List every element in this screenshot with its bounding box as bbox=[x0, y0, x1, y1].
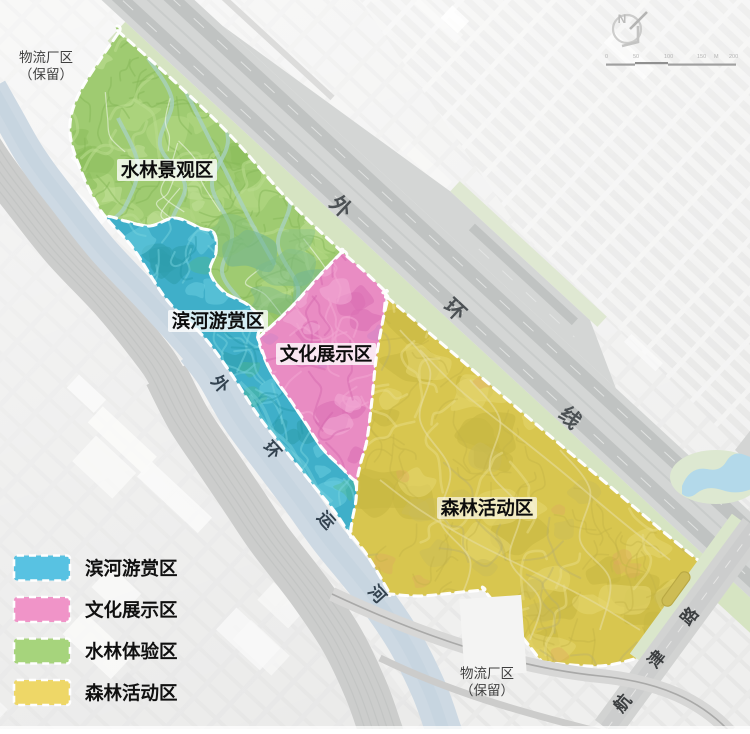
svg-text:滨河游赏区: 滨河游赏区 bbox=[172, 311, 265, 332]
svg-text:150: 150 bbox=[697, 54, 706, 60]
svg-text:0: 0 bbox=[605, 54, 608, 60]
svg-text:50: 50 bbox=[633, 54, 639, 60]
svg-text:水林景观区: 水林景观区 bbox=[121, 160, 214, 181]
svg-text:森林活动区: 森林活动区 bbox=[85, 683, 178, 704]
svg-text:物流厂区: 物流厂区 bbox=[460, 666, 514, 681]
svg-text:物流厂区: 物流厂区 bbox=[19, 50, 73, 65]
svg-text:文化展示区: 文化展示区 bbox=[85, 600, 178, 621]
svg-text:100: 100 bbox=[664, 54, 673, 60]
svg-text:滨河游赏区: 滨河游赏区 bbox=[85, 558, 178, 579]
svg-text:水林体验区: 水林体验区 bbox=[85, 641, 178, 662]
svg-text:（保留）: （保留） bbox=[19, 67, 73, 82]
svg-text:文化展示区: 文化展示区 bbox=[280, 344, 373, 365]
svg-text:200: 200 bbox=[729, 54, 738, 60]
svg-text:N: N bbox=[618, 12, 627, 26]
svg-text:M: M bbox=[714, 54, 719, 60]
svg-text:森林活动区: 森林活动区 bbox=[441, 498, 534, 519]
svg-text:（保留）: （保留） bbox=[460, 683, 514, 698]
